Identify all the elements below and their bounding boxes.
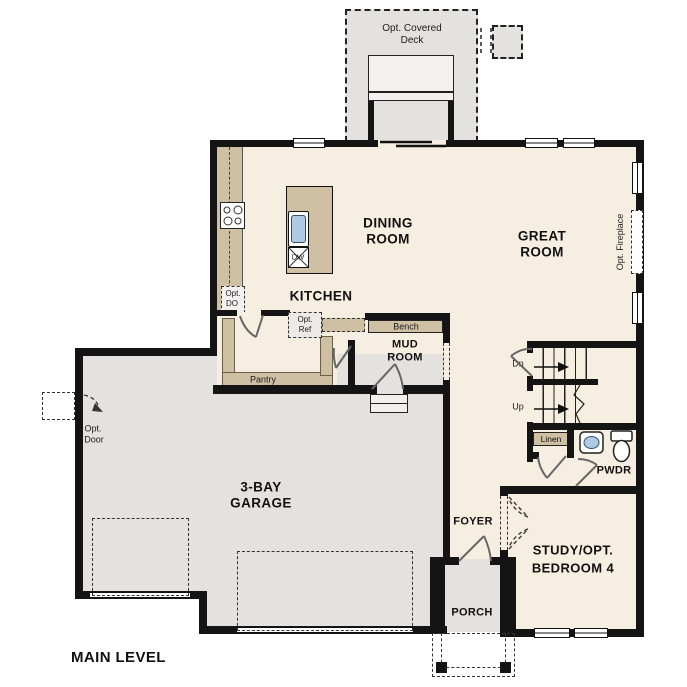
deck-stairs-upper	[368, 55, 454, 92]
garage-bay-outline-1	[92, 518, 189, 596]
kitchen-bottom-wall	[213, 385, 377, 394]
study-french-door-opening	[500, 496, 508, 550]
linen-right-wall	[567, 430, 574, 458]
study-label-line2: BEDROOM 4	[532, 562, 614, 575]
window-top-1	[293, 138, 325, 148]
stairs-treads-upper	[533, 348, 596, 379]
pantry-shelf-left	[222, 318, 235, 378]
opt-do-label-line1: Opt.	[225, 290, 240, 298]
window-right-1	[632, 162, 643, 194]
study-bottom-wall	[500, 629, 644, 637]
garage-left-wall	[75, 348, 83, 599]
garage-bay-outline-2	[237, 551, 413, 631]
opt-do-label-line2: DO	[226, 300, 238, 308]
opt-counter	[322, 318, 365, 332]
pantry-top-wall-a	[217, 310, 237, 316]
garage-label-line2: GARAGE	[230, 496, 292, 510]
great-room-label-line2: ROOM	[520, 245, 564, 259]
garage-label-line1: 3-BAY	[240, 480, 281, 494]
porch-left-wall	[430, 557, 445, 633]
house-left-wall	[210, 140, 217, 356]
bench-label: Bench	[393, 323, 419, 332]
opt-fireplace-box	[631, 210, 643, 274]
cooktop	[220, 202, 245, 229]
deck-sidewall-right	[448, 101, 454, 142]
porch-stoop-inner	[441, 633, 506, 668]
stairs-up-label: Up	[512, 403, 524, 412]
opt-fireplace-label: Opt. Fireplace	[615, 207, 625, 277]
stairs-treads-lower	[533, 385, 580, 423]
garage-top-wall	[75, 348, 217, 356]
pantry-shelf-bottom	[222, 372, 333, 386]
garage-right-wall	[443, 387, 450, 565]
opt-door-label-line2: Door	[84, 436, 104, 445]
great-room-label-line1: GREAT	[518, 229, 566, 243]
study-label-line1: STUDY/OPT.	[533, 544, 614, 557]
pantry-top-wall-b	[261, 310, 290, 316]
opt-ref-label-line2: Ref	[299, 326, 311, 334]
main-level-title: MAIN LEVEL	[71, 649, 166, 666]
window-study-1	[534, 628, 570, 638]
linen-label: Linen	[541, 435, 562, 444]
deck-connector-dashes	[481, 28, 491, 56]
dining-label-line2: ROOM	[366, 232, 410, 246]
stairs-bottom-wall	[527, 423, 639, 430]
floor-porch	[445, 559, 502, 632]
stairs-down-label: Dn	[512, 360, 524, 369]
window-top-3	[563, 138, 595, 148]
mudroom-left-wall	[348, 340, 355, 390]
deck-label-line1: Opt. Covered	[382, 24, 441, 34]
garage-step-2	[370, 403, 408, 413]
deck-label-line2: Deck	[401, 36, 424, 46]
porch-right-wall	[500, 557, 516, 633]
kitchen-label: KITCHEN	[290, 289, 353, 303]
linen-bottom-wall	[527, 452, 539, 459]
window-top-2	[525, 138, 558, 148]
deck-opening	[378, 140, 446, 147]
porch-post-left	[436, 662, 447, 673]
opt-door-box	[42, 392, 75, 420]
pwdr-label: PWDR	[597, 466, 632, 477]
pantry-label: Pantry	[250, 376, 276, 385]
porch-label: PORCH	[451, 608, 492, 619]
deck-opt-extension	[492, 25, 523, 59]
dining-label-line1: DINING	[363, 216, 413, 230]
dishwasher-label: DW	[291, 253, 306, 261]
island-sink-basin	[291, 215, 306, 243]
opt-door-label-line1: Opt.	[84, 425, 101, 434]
porch-post-right	[500, 662, 511, 673]
foyer-bottom-wall	[443, 557, 459, 565]
foyer-label: FOYER	[453, 517, 492, 528]
mudroom-top-wall	[365, 313, 450, 320]
deck-stairs-landing	[368, 92, 454, 101]
window-right-2	[632, 292, 643, 324]
study-top-wall	[500, 486, 639, 494]
mudroom-label-line2: ROOM	[387, 353, 422, 364]
pantry-shelf-right	[320, 336, 333, 376]
mudroom-cased-opening	[443, 343, 450, 380]
stairs-top-wall	[527, 341, 639, 348]
opt-ref-label-line1: Opt.	[297, 316, 312, 324]
deck-sidewall-left	[368, 101, 374, 142]
floor-plan: Opt. Covered Deck Opt. Door Opt. Firepla…	[0, 0, 687, 687]
mudroom-label-line1: MUD	[392, 340, 418, 351]
window-study-2	[574, 628, 608, 638]
